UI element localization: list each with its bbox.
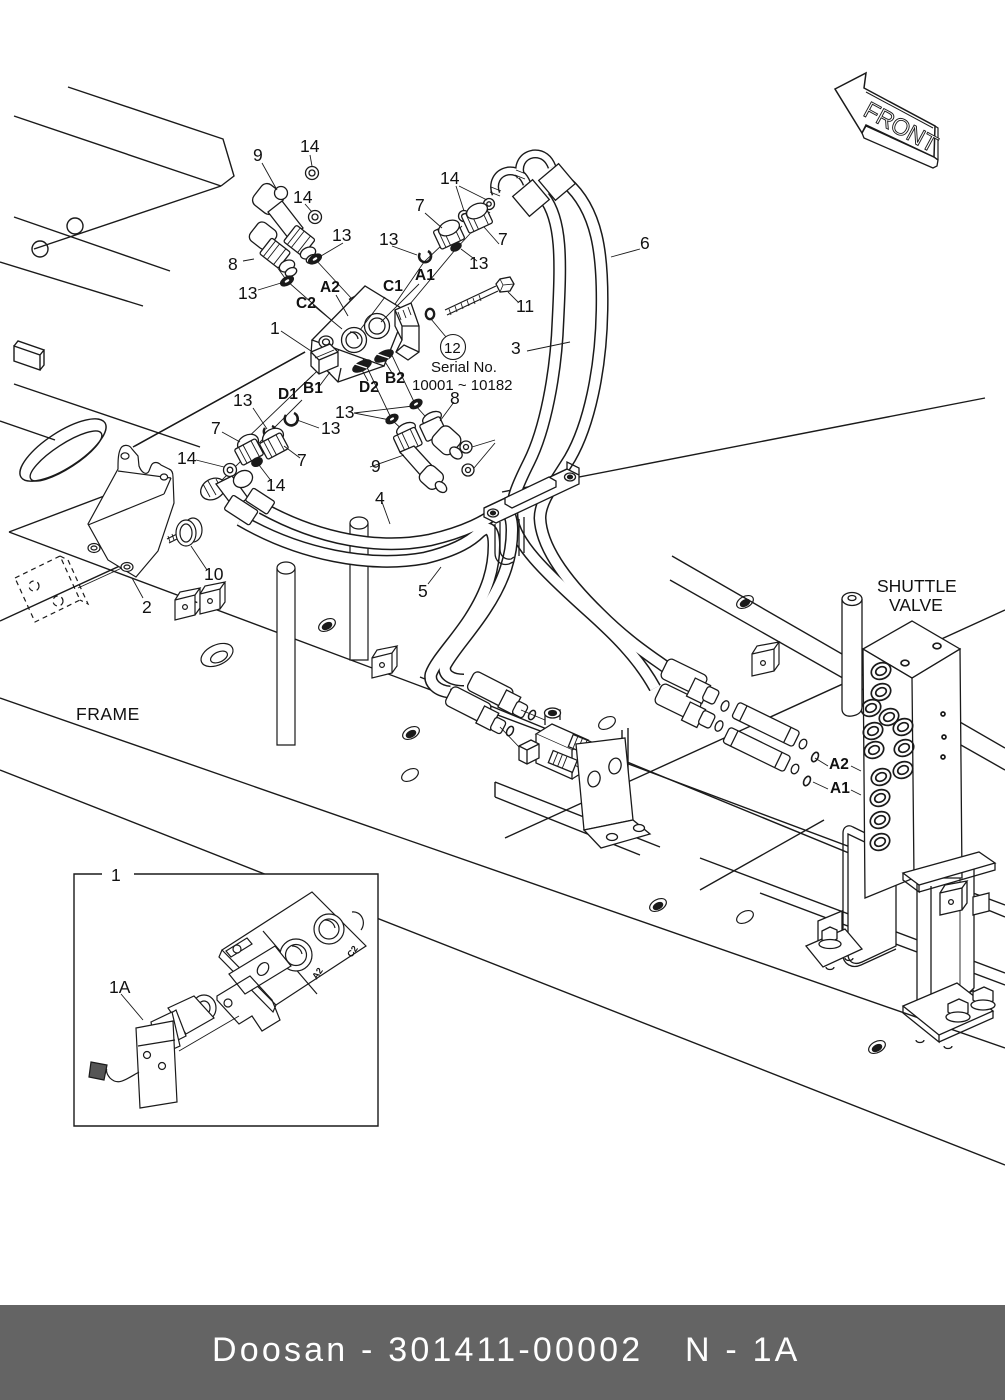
- svg-text:3: 3: [511, 338, 521, 358]
- svg-text:7: 7: [415, 195, 425, 215]
- svg-text:12: 12: [444, 340, 461, 357]
- svg-text:13: 13: [469, 253, 488, 273]
- svg-text:D2: D2: [359, 379, 379, 396]
- svg-text:13: 13: [379, 229, 398, 249]
- svg-text:D1: D1: [278, 386, 298, 403]
- svg-text:VALVE: VALVE: [889, 595, 943, 615]
- svg-text:FRAME: FRAME: [76, 704, 140, 724]
- svg-text:14: 14: [266, 475, 286, 495]
- svg-text:A1: A1: [830, 780, 850, 797]
- svg-text:A2: A2: [829, 756, 849, 773]
- svg-text:13: 13: [238, 283, 257, 303]
- svg-text:14: 14: [440, 168, 460, 188]
- svg-text:8: 8: [450, 388, 460, 408]
- svg-text:1: 1: [270, 318, 280, 338]
- svg-text:11: 11: [516, 296, 534, 316]
- svg-text:8: 8: [228, 254, 238, 274]
- svg-text:13: 13: [233, 390, 252, 410]
- svg-text:2: 2: [142, 597, 152, 617]
- svg-text:14: 14: [177, 448, 197, 468]
- svg-text:14: 14: [300, 136, 320, 156]
- svg-text:B1: B1: [303, 380, 323, 397]
- svg-text:1: 1: [111, 865, 121, 885]
- svg-text:7: 7: [297, 450, 307, 470]
- svg-text:6: 6: [640, 233, 650, 253]
- svg-text:4: 4: [375, 488, 385, 508]
- svg-text:7: 7: [498, 229, 508, 249]
- svg-text:7: 7: [211, 418, 221, 438]
- svg-text:13: 13: [332, 225, 351, 245]
- svg-text:C1: C1: [383, 278, 403, 295]
- svg-text:9: 9: [253, 145, 263, 165]
- svg-text:Serial No.: Serial No.: [431, 359, 497, 376]
- svg-text:SHUTTLE: SHUTTLE: [877, 576, 957, 596]
- svg-text:13: 13: [335, 402, 354, 422]
- svg-text:14: 14: [293, 187, 313, 207]
- svg-text:A2: A2: [320, 279, 340, 296]
- svg-text:10: 10: [204, 564, 224, 584]
- svg-text:1A: 1A: [109, 977, 131, 997]
- svg-text:10001 ~ 10182: 10001 ~ 10182: [412, 377, 513, 394]
- svg-text:5: 5: [418, 581, 428, 601]
- svg-text:B2: B2: [385, 370, 405, 387]
- svg-text:A1: A1: [415, 267, 435, 284]
- svg-text:C2: C2: [296, 295, 316, 312]
- svg-text:9: 9: [371, 456, 381, 476]
